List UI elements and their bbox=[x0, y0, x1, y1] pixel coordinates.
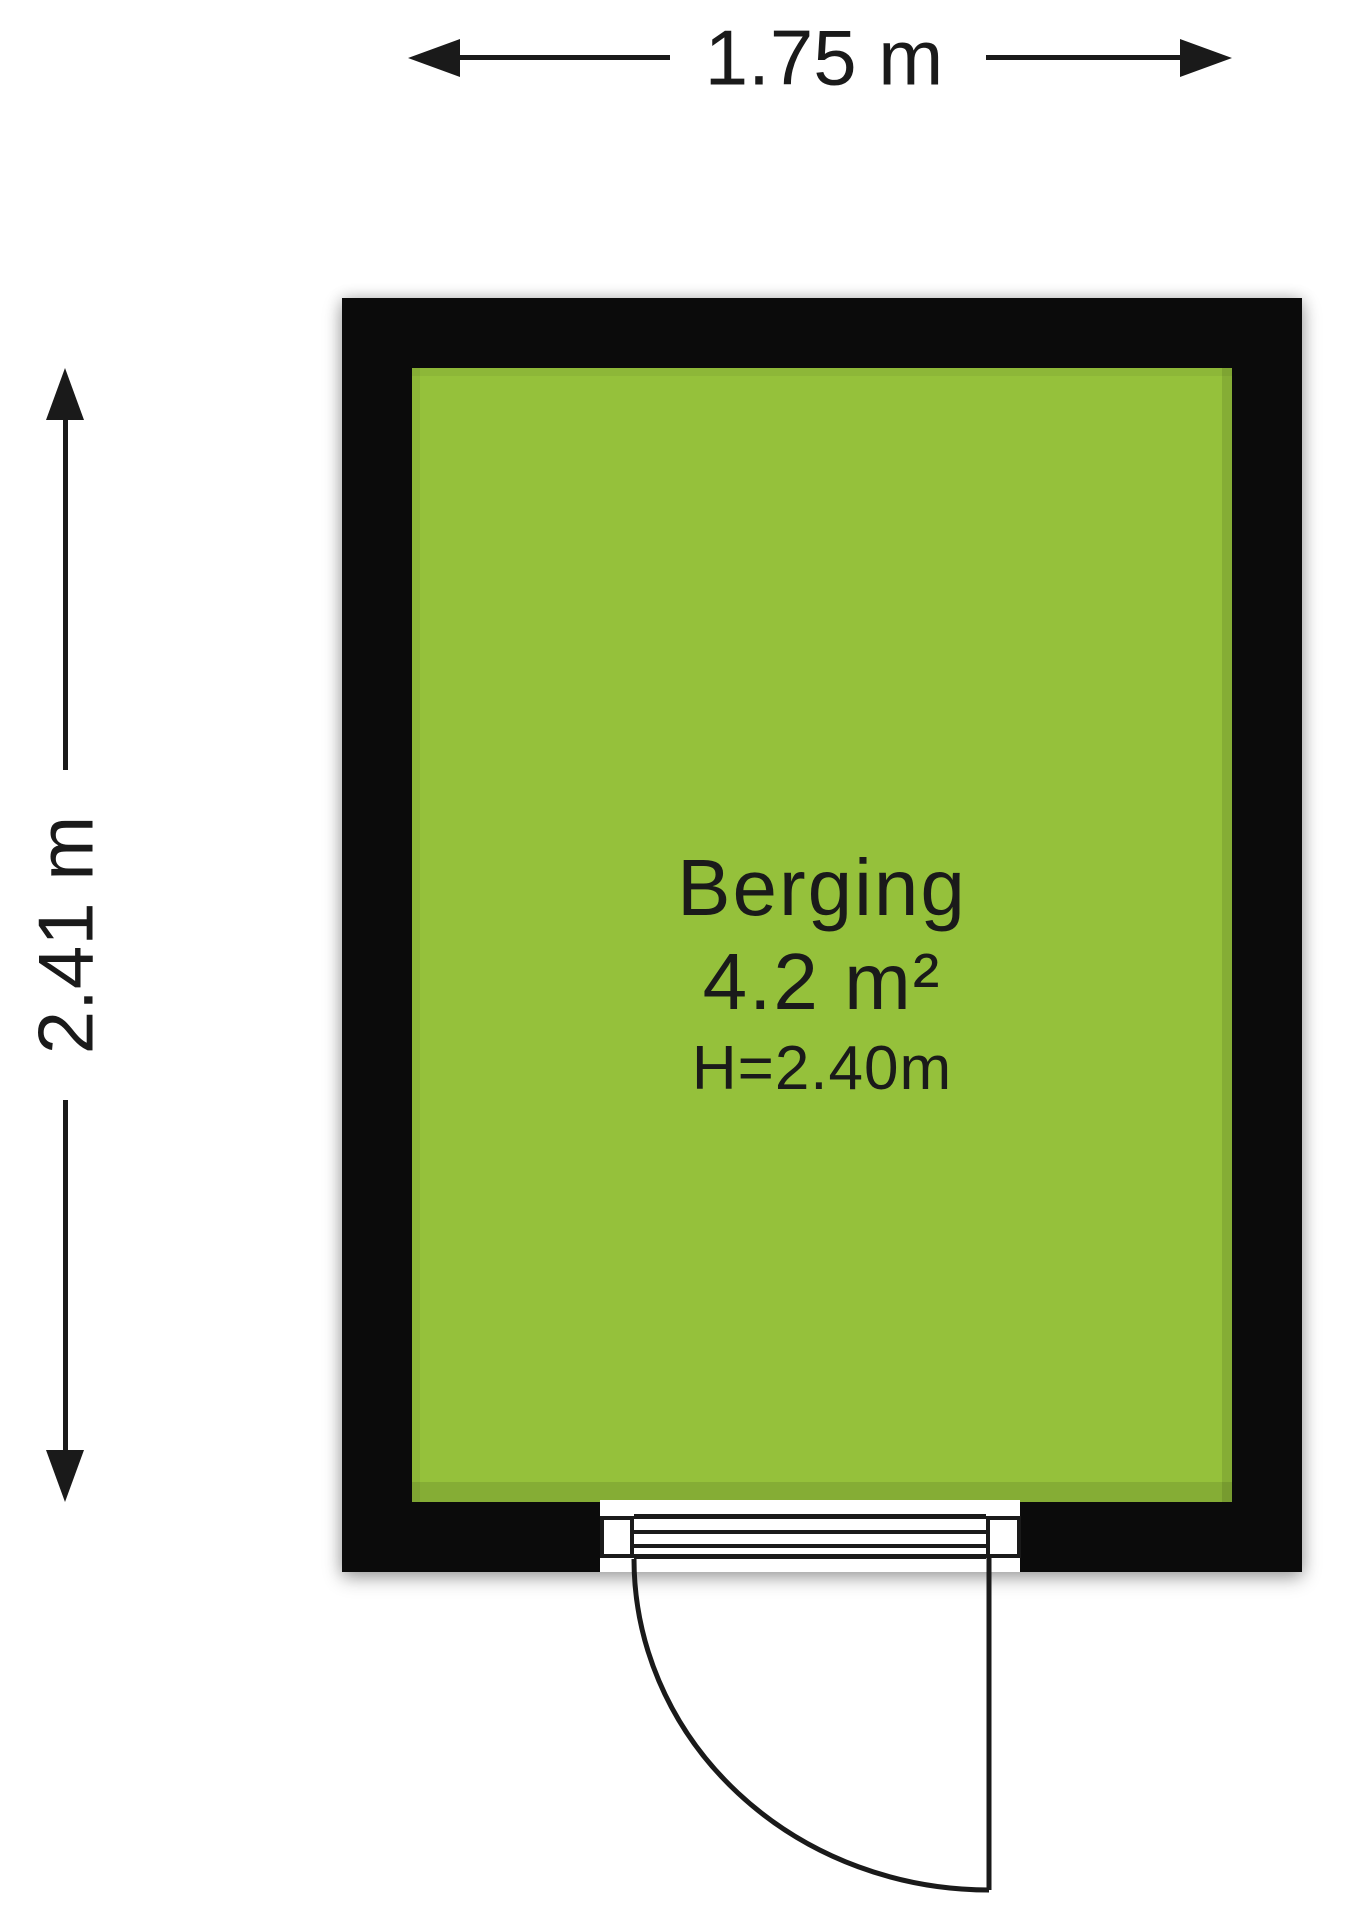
room-label: Berging 4.2 m² H=2.40m bbox=[412, 840, 1232, 1110]
room-ceiling-height: H=2.40m bbox=[412, 1028, 1232, 1110]
arrow-right-icon bbox=[1180, 39, 1232, 77]
height-dimension-line-bottom bbox=[63, 1100, 68, 1452]
arrow-up-icon bbox=[46, 368, 84, 420]
height-dimension-line-top bbox=[63, 418, 68, 770]
room-area: 4.2 m² bbox=[412, 936, 1232, 1028]
floorplan-canvas: 1.75 m 2.41 m Berging 4.2 m² H=2.40m bbox=[0, 0, 1358, 1920]
arrow-down-icon bbox=[46, 1450, 84, 1502]
room-name: Berging bbox=[412, 840, 1232, 936]
width-dimension-line-right bbox=[986, 55, 1184, 60]
door-swing-arc bbox=[634, 1559, 989, 1890]
door-slab-line bbox=[634, 1544, 986, 1548]
door-frame-post-left bbox=[600, 1516, 634, 1558]
door-slab-line bbox=[634, 1530, 986, 1534]
width-dimension-line-left bbox=[458, 55, 670, 60]
width-dimension-label: 1.75 m bbox=[705, 13, 943, 104]
door-frame-post-right bbox=[986, 1516, 1021, 1558]
door-slab bbox=[634, 1514, 986, 1559]
height-dimension-label: 2.41 m bbox=[21, 816, 112, 1054]
arrow-left-icon bbox=[408, 39, 460, 77]
